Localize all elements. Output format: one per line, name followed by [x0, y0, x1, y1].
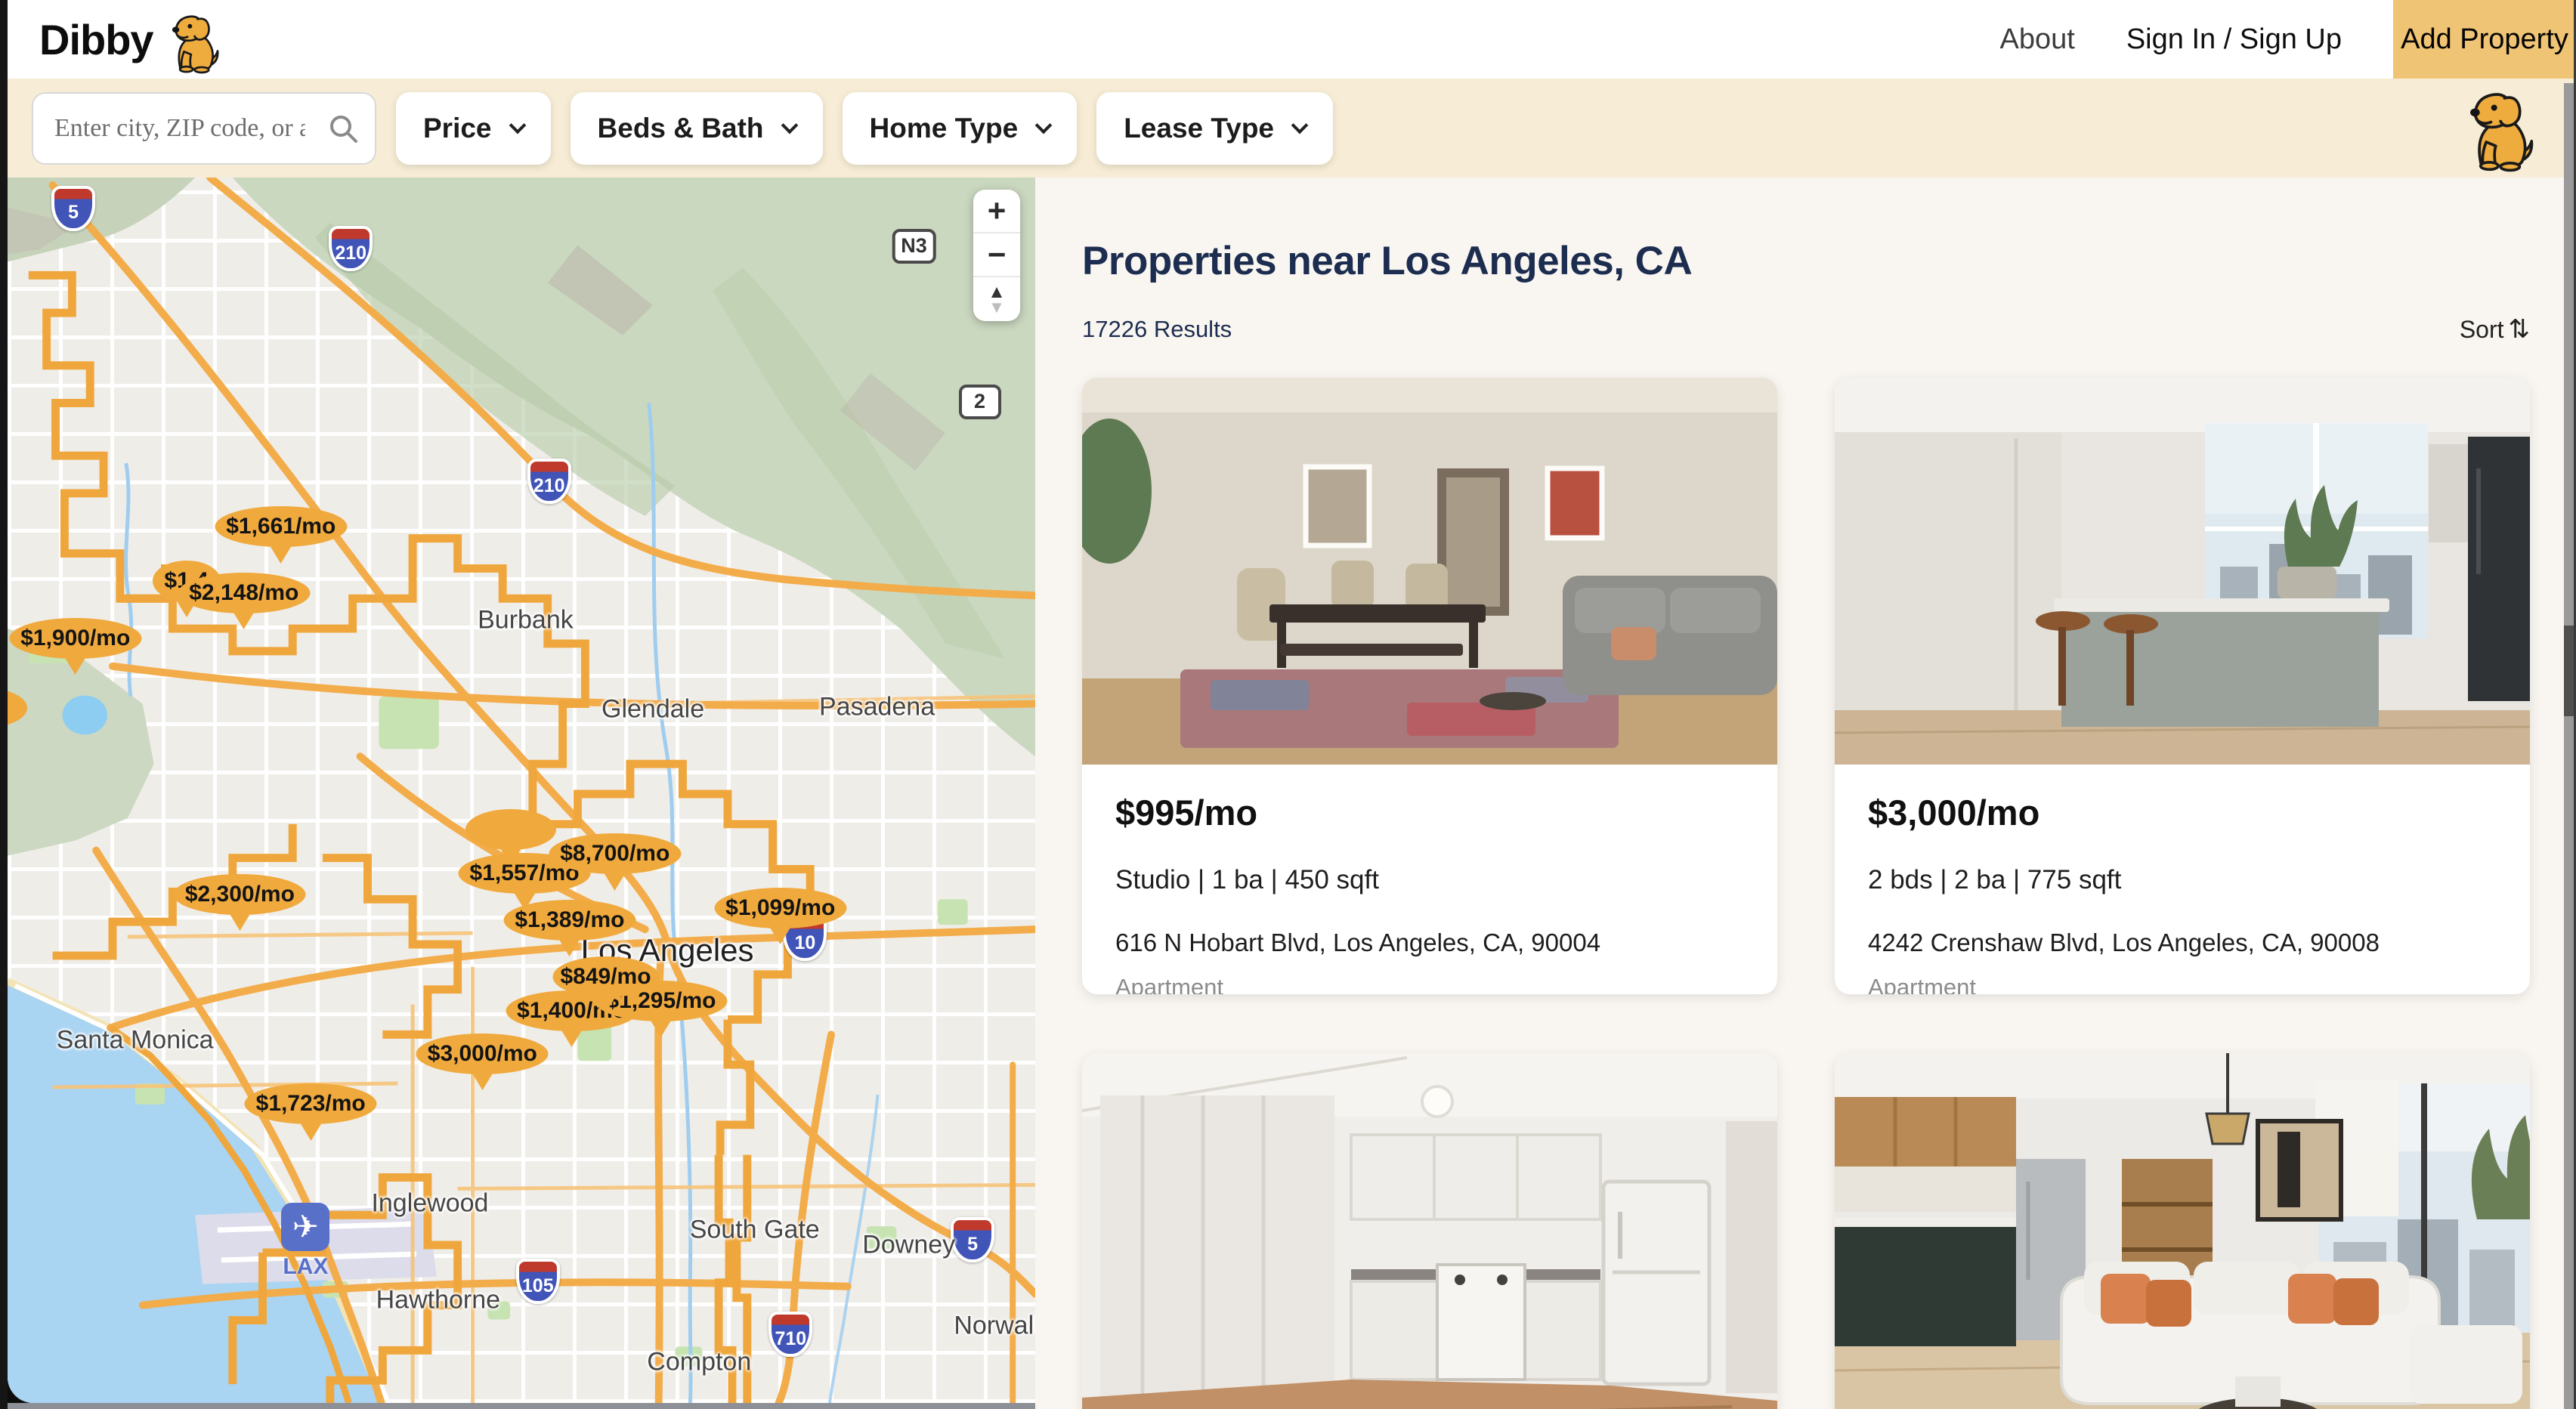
home-type-filter-label: Home Type [870, 113, 1019, 144]
route-shield: 105 [516, 1259, 560, 1304]
listing-address: 4242 Crenshaw Blvd, Los Angeles, CA, 900… [1868, 929, 2497, 957]
listing-details: Studio | 1 ba | 450 sqft [1115, 865, 1744, 895]
filter-bar: Price Beds & Bath Home Type Lease Type [0, 79, 2576, 178]
chevron-down-icon [1035, 117, 1053, 134]
map-price-pin[interactable]: $1,723/mo [245, 1083, 377, 1124]
dog-mascot-icon [2458, 85, 2540, 172]
route-shield: 5 [51, 186, 95, 231]
page-title: Properties near Los Angeles, CA [1082, 238, 2530, 284]
lax-airport-marker: ✈ LAX [281, 1203, 329, 1280]
map-city-label: Inglewood [371, 1188, 488, 1218]
property-card[interactable] [1082, 1053, 1777, 1409]
zoom-in-button[interactable]: + [973, 190, 1020, 233]
brand[interactable]: Dibby [39, 2, 223, 76]
search-icon[interactable] [326, 112, 360, 145]
brand-name: Dibby [39, 15, 153, 64]
map-price-pin[interactable]: $1,661/mo [215, 506, 347, 547]
map-city-label: South Gate [690, 1216, 820, 1245]
map-city-label: Downey [862, 1230, 955, 1259]
property-info: $3,000/mo 2 bds | 2 ba | 775 sqft 4242 C… [1835, 765, 2530, 994]
route-shield: 210 [527, 459, 571, 504]
route-shield: 210 [329, 226, 373, 271]
results-panel: Properties near Los Angeles, CA 17226 Re… [1035, 178, 2576, 1409]
listing-home-type: Apartment [1115, 974, 1744, 994]
map-city-label: Compton [647, 1348, 751, 1377]
map-tilt-control[interactable]: ▲ ▼ [973, 277, 1020, 321]
listing-details: 2 bds | 2 ba | 775 sqft [1868, 865, 2497, 895]
property-info: $995/mo Studio | 1 ba | 450 sqft 616 N H… [1082, 765, 1777, 994]
map-price-pin[interactable]: $1,900/mo [9, 618, 141, 659]
property-card[interactable]: $3,000/mo 2 bds | 2 ba | 775 sqft 4242 C… [1835, 378, 2530, 994]
add-property-button[interactable]: Add Property [2393, 0, 2576, 79]
airport-label: LAX [281, 1254, 329, 1280]
sort-button[interactable]: Sort ⇅ [2460, 314, 2530, 345]
route-shield: N3 [892, 229, 936, 264]
property-photo-living-room [1082, 378, 1777, 765]
map-price-pin[interactable]: $2,300/mo [174, 874, 306, 915]
listing-price: $995/mo [1115, 792, 1744, 833]
property-photo-kitchen-island [1835, 378, 2530, 765]
property-card[interactable] [1835, 1053, 2530, 1409]
route-shield: 2 [959, 385, 1001, 419]
chevron-down-icon [1291, 117, 1309, 134]
results-row: 17226 Results Sort ⇅ [1082, 314, 2530, 345]
map-markers-layer: 5210210N32105105710BurbankGlendalePasade… [8, 178, 1035, 1403]
map[interactable]: 5210210N32105105710BurbankGlendalePasade… [8, 178, 1035, 1403]
sort-label: Sort [2460, 316, 2504, 344]
map-controls: + − ▲ ▼ [973, 190, 1020, 321]
map-city-label: Norwalk [954, 1311, 1035, 1340]
map-price-pin[interactable]: $3,000/mo [416, 1034, 549, 1074]
map-price-pin[interactable] [8, 688, 27, 728]
nav-links: About Sign In / Sign Up Add Property [2000, 0, 2576, 79]
airport-icon: ✈ [281, 1203, 329, 1251]
map-price-pin[interactable] [465, 809, 556, 850]
property-photo-modern-living [1835, 1053, 2530, 1409]
property-card[interactable]: $995/mo Studio | 1 ba | 450 sqft 616 N H… [1082, 378, 1777, 994]
scrollbar[interactable] [2564, 83, 2574, 1409]
home-type-filter-button[interactable]: Home Type [843, 92, 1078, 165]
price-filter-label: Price [423, 113, 492, 144]
search-input[interactable] [32, 92, 376, 165]
dog-logo-icon [164, 7, 223, 76]
map-price-pin[interactable]: $849/mo [552, 956, 659, 997]
property-photo-white-kitchen [1082, 1053, 1777, 1409]
map-city-label: Santa Monica [57, 1025, 214, 1055]
results-count: 17226 Results [1082, 316, 1232, 343]
map-price-pin[interactable]: $2,148/mo [178, 573, 310, 613]
route-shield: 5 [951, 1217, 994, 1262]
map-price-pin[interactable]: $1,099/mo [714, 888, 846, 929]
map-city-label: Hawthorne [376, 1285, 500, 1315]
nav-about-link[interactable]: About [2000, 23, 2075, 56]
window-left-edge [0, 0, 8, 1409]
card-grid: $995/mo Studio | 1 ba | 450 sqft 616 N H… [1082, 378, 2530, 1409]
chevron-down-icon [781, 117, 798, 134]
search-wrap [32, 92, 376, 165]
nav-signin-link[interactable]: Sign In / Sign Up [2126, 23, 2342, 56]
listing-address: 616 N Hobart Blvd, Los Angeles, CA, 9000… [1115, 929, 1744, 957]
tilt-down-icon: ▼ [988, 301, 1005, 314]
beds-bath-filter-button[interactable]: Beds & Bath [571, 92, 823, 165]
map-city-label: Glendale [601, 694, 704, 724]
zoom-out-button[interactable]: − [973, 233, 1020, 277]
listing-home-type: Apartment [1868, 974, 2497, 994]
beds-bath-filter-label: Beds & Bath [598, 113, 764, 144]
price-filter-button[interactable]: Price [396, 92, 551, 165]
window-bottom-edge [0, 1403, 1035, 1409]
scrollbar-thumb[interactable] [2564, 626, 2574, 716]
map-city-label: Burbank [478, 605, 574, 635]
map-price-pin[interactable]: $8,700/mo [549, 833, 681, 874]
sort-arrows-icon: ⇅ [2509, 314, 2531, 345]
lease-type-filter-button[interactable]: Lease Type [1096, 92, 1333, 165]
lease-type-filter-label: Lease Type [1124, 113, 1274, 144]
map-city-label: Pasadena [819, 692, 935, 721]
navbar: Dibby About Sign In / Sign Up Add Proper… [0, 0, 2576, 79]
chevron-down-icon [509, 117, 526, 134]
route-shield: 710 [768, 1312, 812, 1357]
listing-price: $3,000/mo [1868, 792, 2497, 833]
